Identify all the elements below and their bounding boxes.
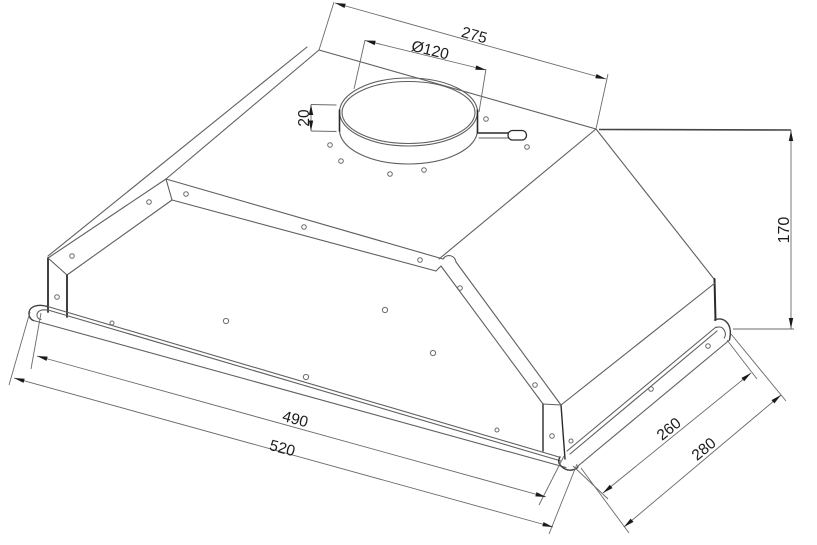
svg-text:260: 260 — [654, 415, 685, 445]
svg-text:280: 280 — [689, 435, 720, 465]
svg-text:Ø120: Ø120 — [410, 38, 451, 64]
svg-text:275: 275 — [459, 24, 488, 47]
svg-text:520: 520 — [267, 437, 297, 460]
svg-text:20: 20 — [296, 109, 313, 127]
svg-text:490: 490 — [280, 408, 310, 431]
svg-text:170: 170 — [776, 217, 793, 244]
